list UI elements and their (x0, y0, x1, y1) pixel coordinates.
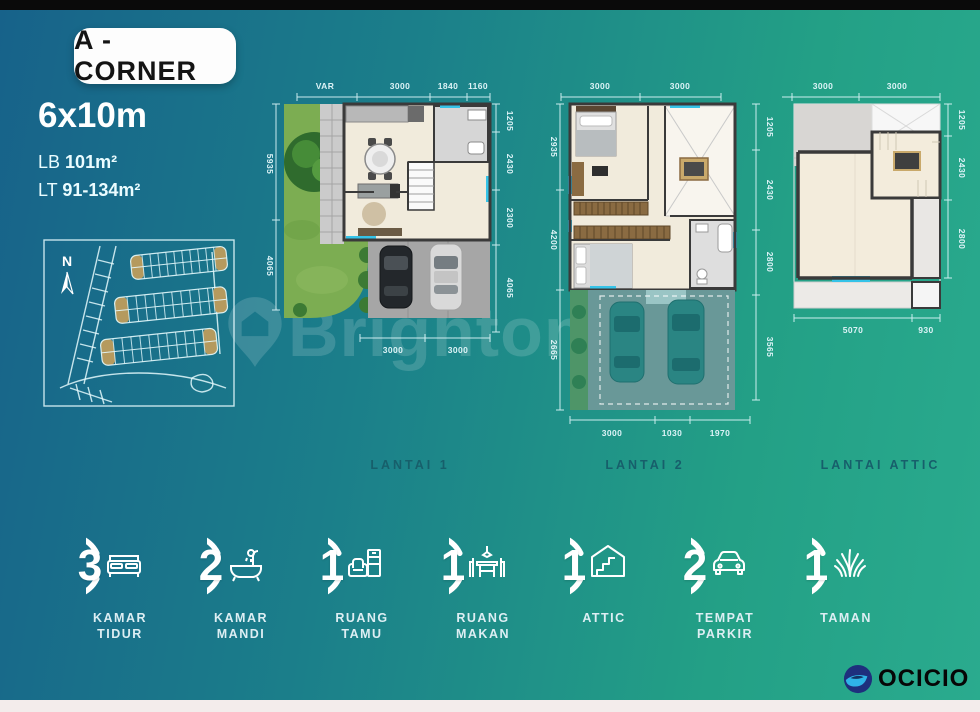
dim-label: 5935 (265, 154, 275, 175)
feature-count: 2 (683, 541, 707, 591)
dim-label: 4200 (550, 230, 559, 251)
dim-label: 2800 (957, 229, 967, 250)
dim-label: 4065 (265, 256, 275, 277)
dim-label: 3565 (765, 337, 775, 358)
lantai-1-label: LANTAI 1 (340, 458, 480, 472)
carport (570, 290, 735, 410)
dim-label: 4065 (505, 278, 515, 299)
unit-size: 6x10m (38, 96, 147, 136)
north-arrow-icon-outline (67, 272, 73, 294)
features-row: 3 KAMAR TIDUR 2 (62, 528, 904, 643)
land-area: LT 91-134m² (38, 180, 140, 201)
north-label: N (62, 253, 72, 269)
lantai-2-label: LANTAI 2 (575, 458, 715, 472)
dim-label: 2935 (550, 137, 559, 158)
dim-label: 1970 (710, 428, 731, 438)
bedroom-2 (574, 244, 632, 288)
building-area: LB 101m² (38, 152, 117, 173)
dim-label: 2430 (765, 180, 775, 201)
feature-count: 1 (804, 541, 828, 591)
dim-label: 1160 (468, 81, 488, 91)
feature-taman: 1 TAMAN (788, 528, 904, 643)
feature-count: 1 (562, 541, 586, 591)
floor-plan-lantai-1: VAR 3000 1840 1160 1205 2430 2300 4065 5… (262, 80, 515, 380)
floor-plan-attic: 3000 3000 1205 2430 2800 5070 930 (780, 80, 970, 345)
north-arrow-icon (61, 272, 67, 294)
feature-label: TAMU (335, 626, 388, 642)
ocicio-logo: OCICIO (843, 664, 969, 694)
dim-label: 3000 (448, 345, 469, 355)
tile-path (320, 104, 344, 244)
stairwell (665, 106, 735, 216)
feature-label: RUANG (456, 610, 510, 626)
dim-label: 3000 (670, 81, 691, 91)
ocicio-logo-icon (843, 664, 873, 694)
site-plan-map: N (42, 236, 238, 412)
dim-label: VAR (316, 81, 335, 91)
tv-cabinet (358, 228, 402, 236)
dim-label: 1205 (957, 110, 967, 131)
dim-label: 2430 (957, 158, 967, 179)
feature-label: TEMPAT (696, 610, 755, 626)
top-black-bar (0, 0, 980, 10)
feature-kamar-tidur: 3 KAMAR TIDUR (62, 528, 178, 643)
dim-label: 3000 (813, 81, 834, 91)
dim-label: 930 (918, 325, 933, 335)
bush (293, 303, 307, 317)
feature-label: TAMAN (820, 610, 872, 626)
lantai-attic-label: LANTAI ATTIC (798, 458, 963, 472)
feature-label: MANDI (214, 626, 268, 642)
dim-label: 2665 (550, 340, 559, 361)
feature-attic: 1 ATTIC (546, 528, 662, 643)
dim-label: 3000 (887, 81, 908, 91)
feature-label: KAMAR (214, 610, 268, 626)
dim-label: 3000 (383, 345, 404, 355)
dim-label: 1840 (438, 81, 459, 91)
dim-label: 3000 (590, 81, 611, 91)
lb-label: LB (38, 152, 60, 172)
feature-ruang-makan: 1 RUANG MAKAN (425, 528, 541, 643)
dim-label: 2800 (765, 252, 775, 273)
terrace-strip (794, 282, 912, 308)
terrace-box (912, 282, 940, 308)
feature-kamar-mandi: 2 KAMAR MANDI (183, 528, 299, 643)
feature-count: 1 (441, 541, 465, 591)
car-silver (430, 244, 462, 310)
floor-plan-lantai-2: 3000 3000 2935 4200 2665 1205 2430 2800 … (550, 80, 775, 445)
feature-label: KAMAR (93, 610, 147, 626)
dim-label: 1205 (505, 111, 515, 132)
side-strip (912, 198, 940, 278)
feature-count: 3 (78, 541, 102, 591)
feature-label: PARKIR (696, 626, 755, 642)
bottom-light-bar (0, 700, 980, 712)
lot-row (100, 328, 218, 366)
dim-label: 1030 (662, 428, 683, 438)
feature-count: 2 (199, 541, 223, 591)
bathroom (690, 220, 735, 288)
feature-label: RUANG (335, 610, 388, 626)
lt-value: 91-134m² (62, 180, 140, 200)
ocicio-logo-text: OCICIO (878, 665, 969, 693)
feature-ruang-tamu: 1 RUANG TAMU (304, 528, 420, 643)
feature-count: 1 (320, 541, 344, 591)
dining-table (365, 138, 395, 180)
dim-label: 2430 (505, 154, 515, 175)
rug (362, 202, 386, 226)
type-badge: A - CORNER (74, 28, 236, 84)
feature-label: ATTIC (582, 610, 625, 626)
feature-label: MAKAN (456, 626, 510, 642)
feature-label: TIDUR (93, 626, 147, 642)
car-dark (380, 246, 412, 308)
flyer-page: A - CORNER 6x10m LB 101m² LT 91-134m² N (0, 0, 980, 712)
kitchen-counter (346, 106, 408, 122)
dim-label: 3000 (390, 81, 411, 91)
dim-label: 1205 (765, 117, 775, 138)
feature-tempat-parkir: 2 TEMPAT PARKIR (667, 528, 783, 643)
lb-value: 101m² (65, 152, 117, 172)
dim-label: 5070 (843, 325, 864, 335)
dim-label: 2300 (505, 208, 515, 229)
stair-room (872, 132, 940, 198)
kitchen-appliance (408, 106, 424, 122)
dim-label: 3000 (602, 428, 623, 438)
lot-row (114, 286, 228, 324)
type-badge-label: A - CORNER (74, 25, 236, 87)
lt-label: LT (38, 180, 57, 200)
